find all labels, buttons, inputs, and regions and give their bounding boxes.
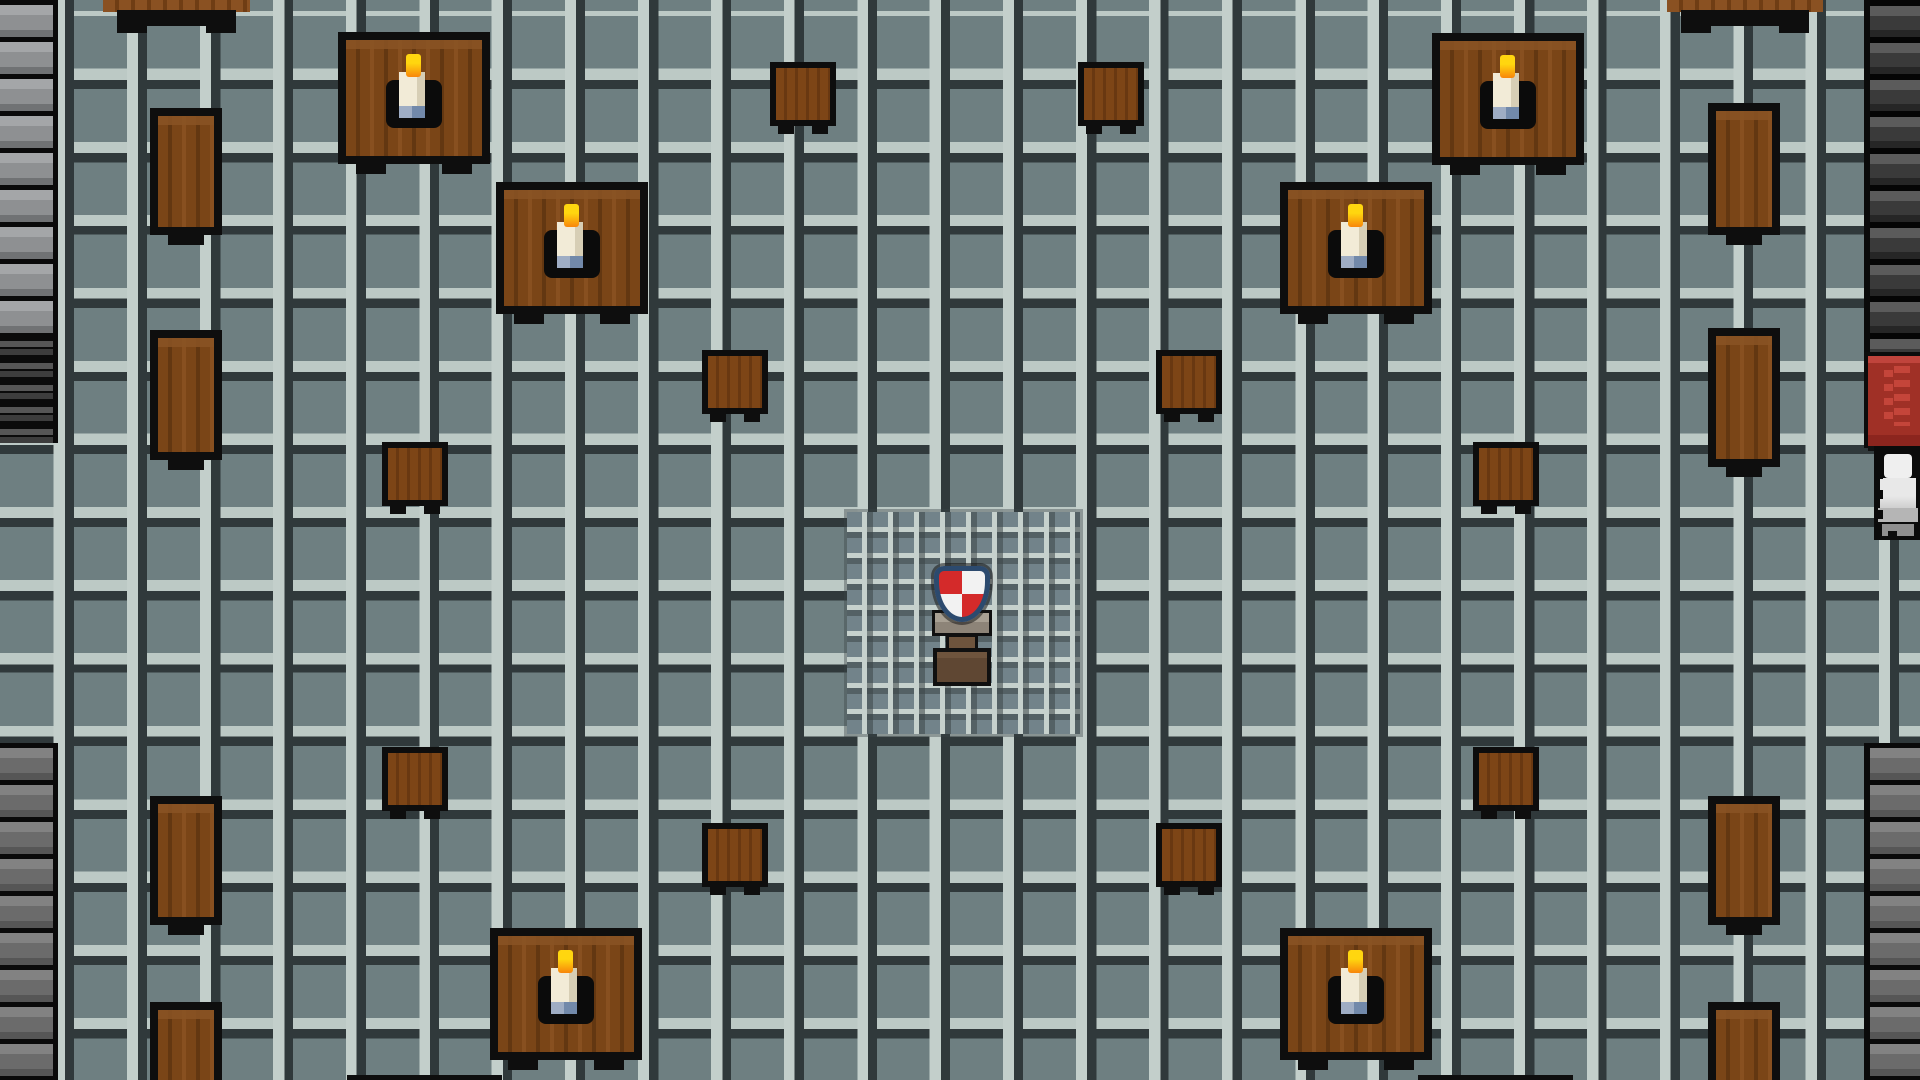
table-top-edge	[1716, 111, 1772, 120]
table-leg-left	[356, 156, 386, 174]
table-topleft-outer	[338, 32, 490, 164]
left-wall-top	[0, 0, 58, 333]
candle	[1476, 59, 1540, 133]
stool-mid-left-inner	[382, 442, 448, 506]
statue-torso	[1880, 478, 1916, 508]
armor-statue	[1874, 446, 1920, 540]
table-top-edge	[158, 338, 214, 347]
shield-pedestal[interactable]	[920, 560, 1004, 690]
stool-mid-left-outer	[702, 350, 768, 414]
cut-table-bottom-right	[1418, 1075, 1573, 1080]
table-topright-outer	[1432, 33, 1584, 165]
stool-leg-left	[390, 500, 406, 514]
stool-bottom-left-inner	[382, 747, 448, 811]
table-top-edge	[1288, 190, 1424, 199]
table-leg-right	[1732, 459, 1762, 477]
statue-checker-pixel	[1874, 490, 1883, 499]
cut-table-top-right	[1667, 0, 1823, 33]
candle	[1324, 208, 1388, 282]
statue-checker-pixel	[1888, 531, 1897, 540]
stool-leg-right	[1515, 805, 1531, 819]
stool-leg-right	[1198, 881, 1214, 895]
stool-leg-left	[1481, 805, 1497, 819]
stool-leg-right	[744, 408, 760, 422]
statue-checker-pixel	[1874, 510, 1883, 519]
stool-bottom-left-outer	[702, 823, 768, 887]
table-topleft-inner	[496, 182, 648, 314]
sidetable-left-3	[150, 796, 222, 925]
stool-leg-right	[1120, 120, 1136, 134]
table-leg-right	[1779, 24, 1809, 33]
candle-flame-icon	[406, 54, 421, 77]
stool-leg-right	[424, 500, 440, 514]
table-leg-right	[1732, 917, 1762, 935]
stool-top-right	[1078, 62, 1144, 126]
sidetable-right-4	[1708, 1002, 1780, 1080]
candle-base	[1341, 256, 1367, 268]
table-leg-left	[514, 306, 544, 324]
table-bottomright	[1280, 928, 1432, 1060]
sidetable-left-1	[150, 108, 222, 235]
statue-foot	[1882, 524, 1914, 536]
stool-leg-left	[390, 805, 406, 819]
candle-base	[557, 256, 583, 268]
table-top-edge	[1716, 804, 1772, 813]
candle	[534, 954, 598, 1028]
sidetable-left-4	[150, 1002, 222, 1080]
sidetable-right-2	[1708, 328, 1780, 467]
sidetable-right-3	[1708, 796, 1780, 925]
stool-leg-right	[424, 805, 440, 819]
table-top-edge	[158, 804, 214, 813]
table-top-edge	[158, 1010, 214, 1019]
stool-top-left	[770, 62, 836, 126]
sidetable-left-2	[150, 330, 222, 460]
table-leg-right	[1536, 157, 1566, 175]
table-leg-left	[1298, 1052, 1328, 1070]
left-wall-bottom	[0, 743, 58, 1080]
game-viewport[interactable]	[0, 0, 1920, 1080]
stool-leg-left	[1086, 120, 1102, 134]
stool-bottom-right-outer	[1156, 823, 1222, 887]
table-leg-left	[1681, 24, 1711, 33]
stool-leg-left	[1164, 881, 1180, 895]
stool-leg-left	[1481, 500, 1497, 514]
red-wall-banner	[1868, 356, 1920, 446]
table-top-edge	[504, 190, 640, 199]
candle-flame-icon	[1348, 950, 1363, 973]
candle-flame-icon	[558, 950, 573, 973]
candle-base	[1341, 1002, 1367, 1014]
stool-leg-left	[710, 881, 726, 895]
stool-leg-left	[778, 120, 794, 134]
stool-leg-left	[710, 408, 726, 422]
table-leg-right	[174, 227, 204, 245]
stool-leg-right	[744, 881, 760, 895]
table-leg-right	[442, 156, 472, 174]
table-leg-left	[508, 1052, 538, 1070]
candle	[540, 208, 604, 282]
candle-flame-icon	[1500, 55, 1515, 78]
sidetable-right-1	[1708, 103, 1780, 235]
candle-flame-icon	[1348, 204, 1363, 227]
table-leg-left	[1298, 306, 1328, 324]
stool-leg-left	[1164, 408, 1180, 422]
table-leg-right	[1384, 1052, 1414, 1070]
cut-table-top-left	[103, 0, 250, 33]
stool-leg-right	[1515, 500, 1531, 514]
table-top-edge	[158, 116, 214, 125]
table-leg-right	[174, 452, 204, 470]
statue-checker-pixel	[1874, 470, 1883, 479]
candle-flame-icon	[564, 204, 579, 227]
table-leg-right	[600, 306, 630, 324]
banner-bottom-flap	[1868, 435, 1920, 446]
candle	[382, 58, 446, 132]
table-leg-left	[117, 24, 147, 33]
statue-base	[1878, 508, 1918, 522]
banner-emblem-pattern	[1894, 366, 1910, 426]
table-leg-right	[1732, 227, 1762, 245]
stool-leg-right	[1198, 408, 1214, 422]
stool-mid-right-outer	[1156, 350, 1222, 414]
table-leg-left	[1450, 157, 1480, 175]
candle-base	[551, 1002, 577, 1014]
banner-rod-strip	[1868, 356, 1920, 363]
stool-bottom-right-inner	[1473, 747, 1539, 811]
table-top-edge	[498, 936, 634, 945]
table-bottomleft	[490, 928, 642, 1060]
table-top-edge	[1716, 336, 1772, 345]
stool-leg-right	[812, 120, 828, 134]
table-top-edge	[1440, 41, 1576, 50]
banner-emblem-pattern	[1884, 370, 1893, 426]
stool-mid-right-inner	[1473, 442, 1539, 506]
candle	[1324, 954, 1388, 1028]
pedestal-foot	[933, 648, 991, 686]
candle-base	[1493, 107, 1519, 119]
table-leg-right	[1384, 306, 1414, 324]
right-wall-top	[1864, 0, 1920, 352]
statue-head	[1884, 454, 1912, 478]
table-leg-right	[594, 1052, 624, 1070]
table-top-edge	[346, 40, 482, 49]
table-leg-right	[174, 917, 204, 935]
table-top-edge	[1716, 1010, 1772, 1019]
left-wall-slats	[0, 333, 58, 443]
candle-base	[399, 106, 425, 118]
table-leg-right	[206, 24, 236, 33]
table-topright-inner	[1280, 182, 1432, 314]
right-wall-bottom	[1864, 743, 1920, 1080]
table-top-edge	[1288, 936, 1424, 945]
cut-table-bottom-left	[347, 1075, 502, 1080]
